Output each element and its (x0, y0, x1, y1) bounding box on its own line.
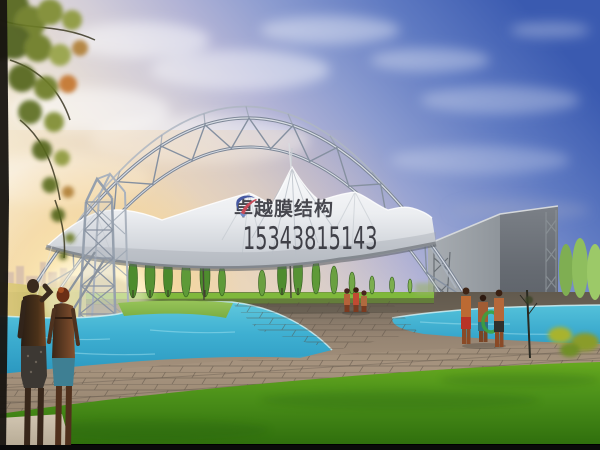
scene-svg (0, 0, 600, 450)
bottom-border (0, 445, 600, 450)
people-center-group (342, 287, 370, 315)
rendering-canvas: 卓越膜结构 15343815143 (0, 0, 600, 450)
right-edge-trees (559, 238, 600, 300)
